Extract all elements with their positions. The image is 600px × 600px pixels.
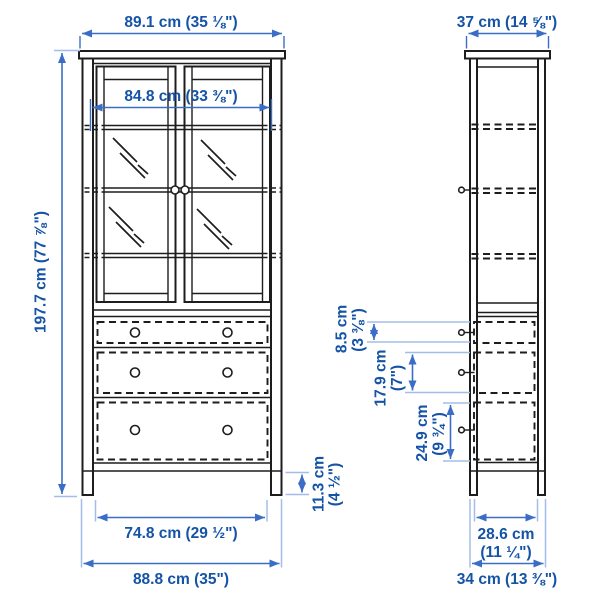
front-view-drawing [79, 51, 285, 495]
bottom-drawer-side [474, 403, 535, 460]
right-door-knob [181, 186, 189, 194]
bottom-drawer-height-label-line2: (9 ¾") [431, 412, 448, 456]
side-inner-depth-label-line1: 28.6 cm [478, 526, 535, 543]
side-top-depth-label: 37 cm (14 ⅝") [457, 14, 557, 31]
side-base-depth-label: 34 cm (13 ⅜") [457, 571, 557, 588]
bottom-drawer-front [98, 403, 268, 460]
middle-drawer-height-label-line1: 17.9 cm [373, 350, 390, 407]
top-drawer-height-label-line2: (3 ⅜") [350, 308, 367, 352]
side-shelf-lines [472, 125, 538, 259]
side-door-knob [459, 187, 471, 193]
front-height-label: 197.7 cm (77 ⅞") [33, 211, 50, 333]
front-top-cap [79, 51, 285, 59]
front-inner-width-label: 84.8 cm (33 ⅜") [124, 88, 237, 105]
bottom-drawer-height-label-line1: 24.9 cm [414, 405, 431, 462]
furniture-dimension-diagram: 89.1 cm (35 ⅛") 37 cm (14 ⅝") 84.8 cm (3… [0, 0, 600, 600]
side-view-drawing [459, 51, 550, 495]
front-top-width-label: 89.1 cm (35 ⅛") [124, 14, 237, 31]
side-top-cap [465, 51, 550, 59]
middle-drawer-front [98, 353, 268, 394]
left-door-knob [171, 186, 179, 194]
top-drawer-side [474, 322, 535, 343]
top-drawer-front [98, 322, 268, 343]
front-drawers [93, 322, 271, 460]
side-inner-depth-label-line2: (11 ¼") [480, 544, 531, 561]
middle-drawer-height-label-line2: (7") [389, 365, 406, 391]
top-drawer-height-label-line1: 8.5 cm [334, 305, 351, 353]
dimension-diagram-canvas: 89.1 cm (35 ⅛") 37 cm (14 ⅝") 84.8 cm (3… [0, 0, 600, 600]
front-right-leg [271, 59, 282, 496]
middle-drawer-side [474, 353, 535, 394]
front-drawer-width-label: 74.8 cm (29 ½") [124, 525, 237, 542]
plinth-height-label-line2: (4 ½") [327, 463, 344, 507]
plinth-height-label-line1: 11.3 cm [311, 456, 328, 512]
front-left-leg [83, 59, 94, 496]
side-back-leg [538, 59, 545, 496]
front-base-width-label: 88.8 cm (35") [133, 571, 229, 588]
